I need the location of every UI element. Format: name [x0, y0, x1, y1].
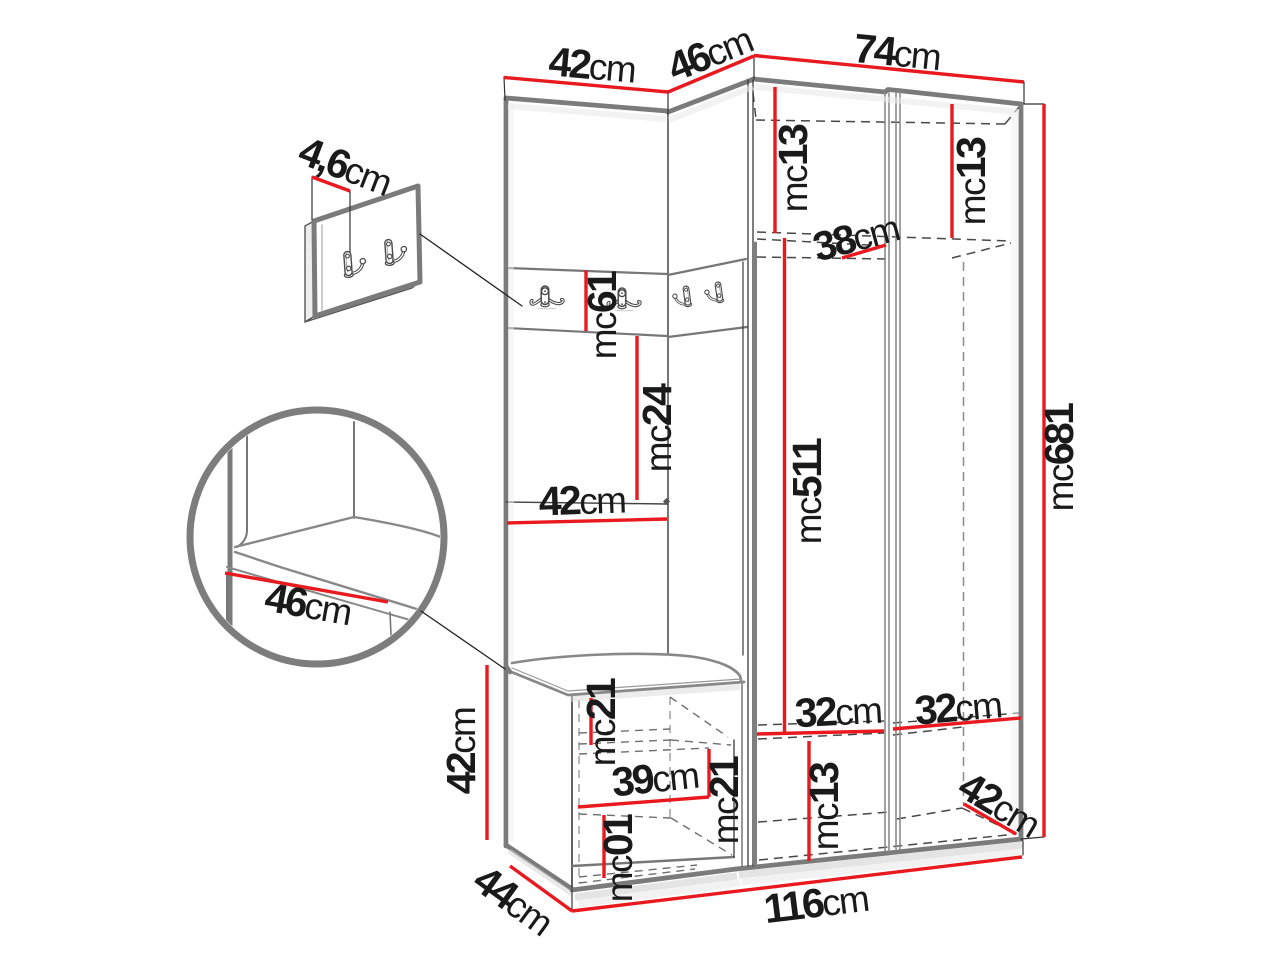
svg-text:mc61: mc61 — [579, 271, 625, 359]
svg-text:mc13: mc13 — [801, 762, 847, 850]
svg-text:mc21: mc21 — [701, 756, 747, 844]
svg-text:mc13: mc13 — [948, 137, 994, 225]
svg-text:4,6cm: 4,6cm — [293, 128, 398, 205]
svg-text:mc24: mc24 — [634, 383, 680, 472]
svg-text:32cm: 32cm — [913, 680, 1003, 733]
svg-text:46cm: 46cm — [661, 16, 758, 91]
svg-text:42cm: 42cm — [438, 708, 484, 795]
svg-text:mc21: mc21 — [578, 678, 624, 766]
svg-text:42cm: 42cm — [538, 476, 626, 525]
svg-text:116cm: 116cm — [761, 874, 870, 932]
svg-text:mc13: mc13 — [770, 124, 816, 212]
svg-text:mc01: mc01 — [595, 814, 641, 902]
svg-text:32cm: 32cm — [794, 686, 883, 736]
svg-text:74cm: 74cm — [852, 25, 943, 79]
svg-text:42cm: 42cm — [547, 38, 637, 91]
svg-text:mc681: mc681 — [1036, 403, 1082, 512]
svg-text:mc511: mc511 — [784, 438, 830, 544]
svg-text:42cm: 42cm — [951, 762, 1049, 846]
